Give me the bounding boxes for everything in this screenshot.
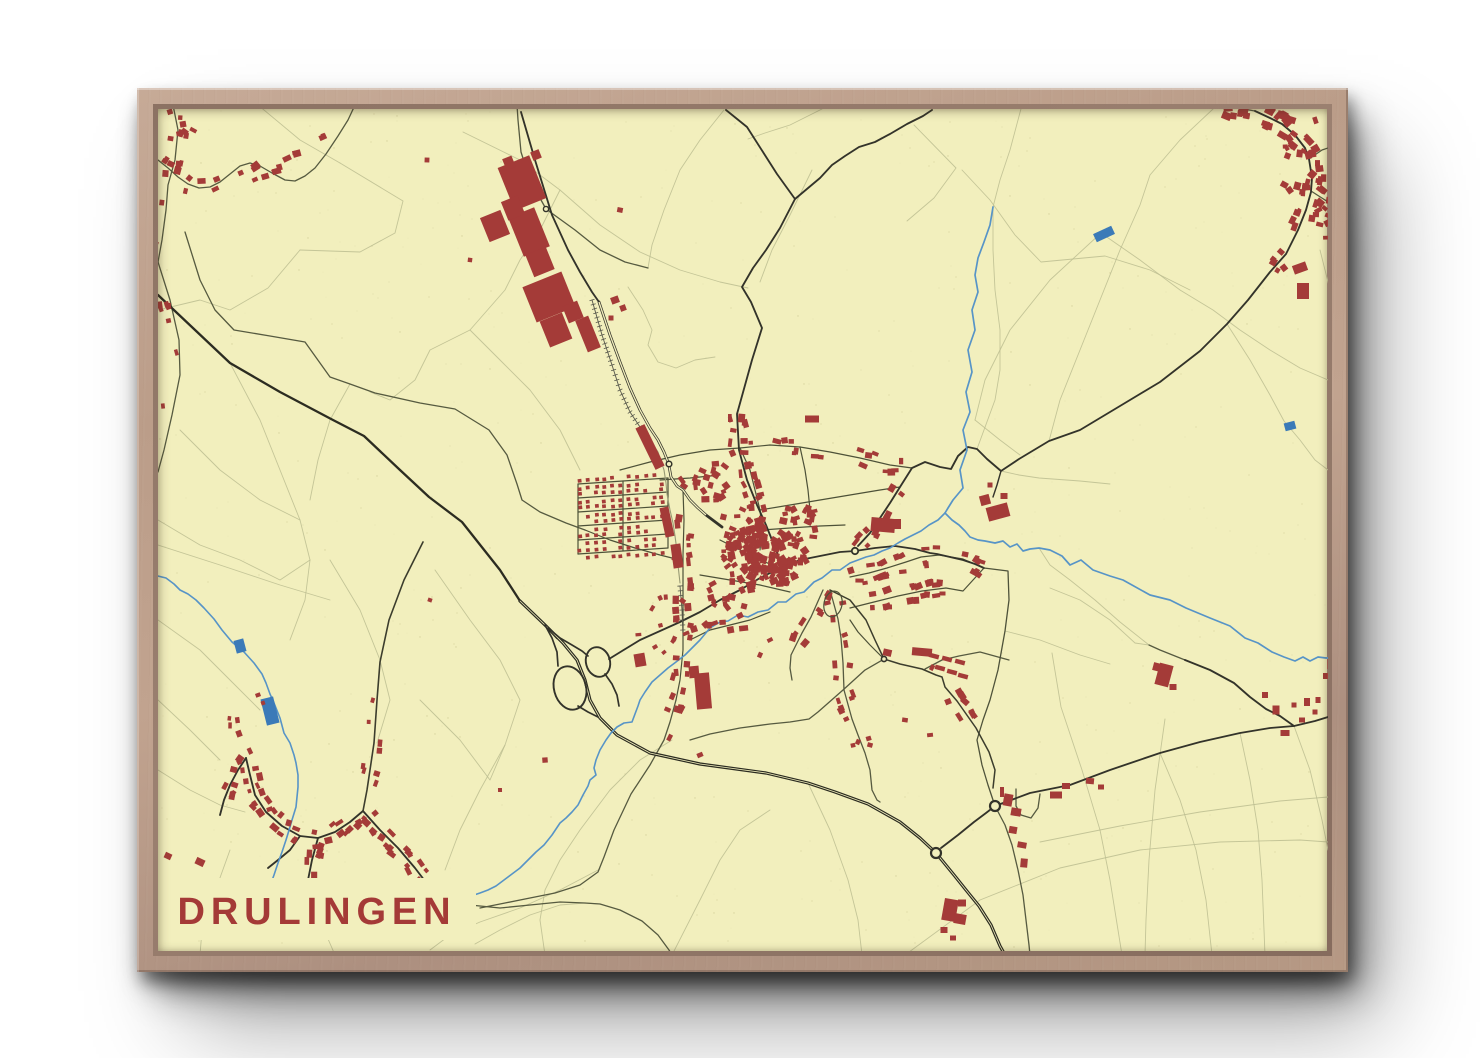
svg-text:DRULINGEN: DRULINGEN (178, 891, 457, 933)
